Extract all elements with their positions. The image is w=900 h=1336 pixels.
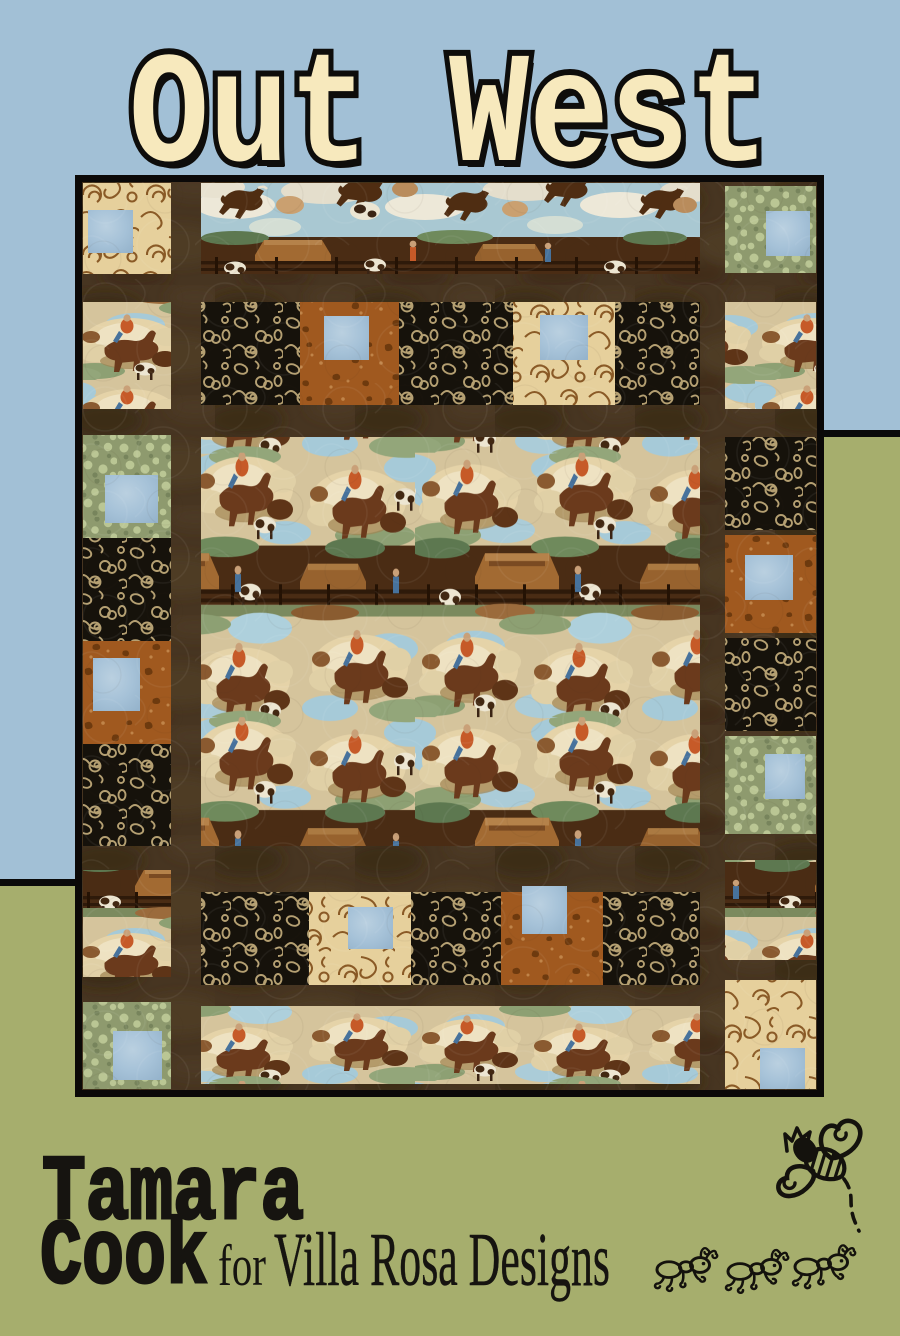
svg-text:for: for: [218, 1233, 266, 1298]
svg-text:Villa Rosa Designs: Villa Rosa Designs: [274, 1218, 610, 1302]
svg-text:Cook: Cook: [40, 1205, 208, 1310]
